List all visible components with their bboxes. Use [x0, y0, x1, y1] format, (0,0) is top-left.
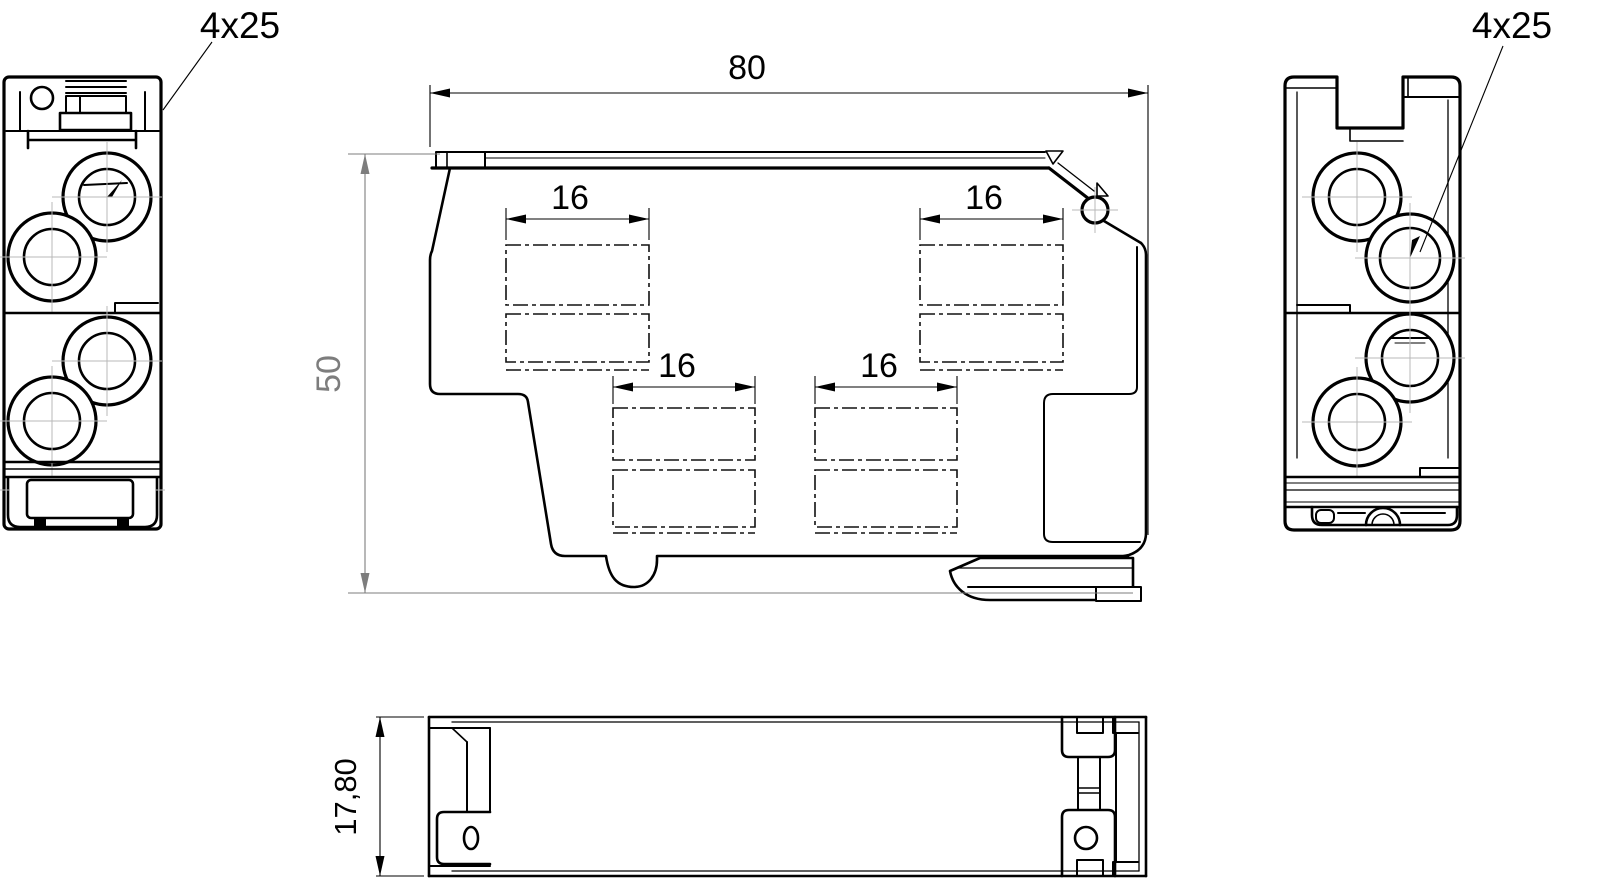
- hidden-openings-upper: [506, 245, 1063, 370]
- dim-16-text: 16: [551, 179, 589, 217]
- mount-hole: [464, 827, 478, 849]
- clamp-holes: [0, 142, 162, 312]
- bottom-view-right-end: [1062, 717, 1138, 876]
- latch-tip: [1097, 183, 1108, 196]
- dimension-pitch-lower-right: 16: [815, 347, 957, 404]
- dim-16-text: 16: [658, 347, 696, 385]
- dimension-pitch-upper-left: 16: [506, 179, 649, 240]
- clip-block-upper: [1062, 717, 1115, 757]
- step-edge: [1420, 468, 1460, 477]
- hidden-openings-lower: [613, 408, 957, 533]
- technical-drawing-canvas: 4x25: [0, 0, 1600, 878]
- dim-50-text: 50: [310, 355, 348, 393]
- clamp-holes: [1302, 142, 1465, 313]
- dim-16-text: 16: [860, 347, 898, 385]
- dim-80-text: 80: [728, 49, 766, 87]
- clamp-holes: [1302, 303, 1465, 477]
- end-view-right: [1285, 77, 1465, 530]
- clip-arc: [1366, 508, 1400, 525]
- din-foot: [8, 478, 157, 527]
- notch-step: [1350, 128, 1403, 141]
- clamp-holes: [0, 306, 162, 476]
- label-holder-end: [436, 152, 485, 168]
- dimension-overall-height: 50: [310, 154, 1133, 593]
- bottom-view-left-end: [429, 728, 490, 866]
- top-hole: [31, 87, 53, 109]
- step-edge: [115, 303, 158, 313]
- leader-line: [163, 42, 212, 110]
- dim-16-text: 16: [965, 179, 1003, 217]
- dimension-depth: 17,80: [328, 717, 424, 876]
- latch-arm: [1049, 168, 1089, 199]
- latch-wedge: [1046, 151, 1063, 164]
- callout-screw-spec-left: 4x25: [163, 5, 280, 110]
- clip-block-lower: [1062, 810, 1115, 876]
- dimension-pitch-upper-right: 16: [920, 179, 1063, 240]
- side-view: 80 50 16 16: [310, 49, 1148, 601]
- screw-spec-label: 4x25: [200, 5, 280, 46]
- dim-1780-text: 17,80: [328, 758, 363, 836]
- body-profile-left-bottom: [430, 168, 1128, 587]
- clip-tab: [1096, 587, 1141, 601]
- bottom-view: 17,80: [328, 717, 1146, 876]
- dimension-pitch-lower-left: 16: [613, 347, 755, 404]
- screw-spec-label: 4x25: [1472, 5, 1552, 46]
- latch-recess: [28, 131, 136, 148]
- end-view-left: [0, 77, 165, 529]
- body-step-inner: [1044, 247, 1140, 542]
- mount-hole: [1075, 827, 1097, 849]
- callout-screw-spec-right: 4x25: [1420, 5, 1552, 252]
- body-profile-right: [1124, 243, 1146, 556]
